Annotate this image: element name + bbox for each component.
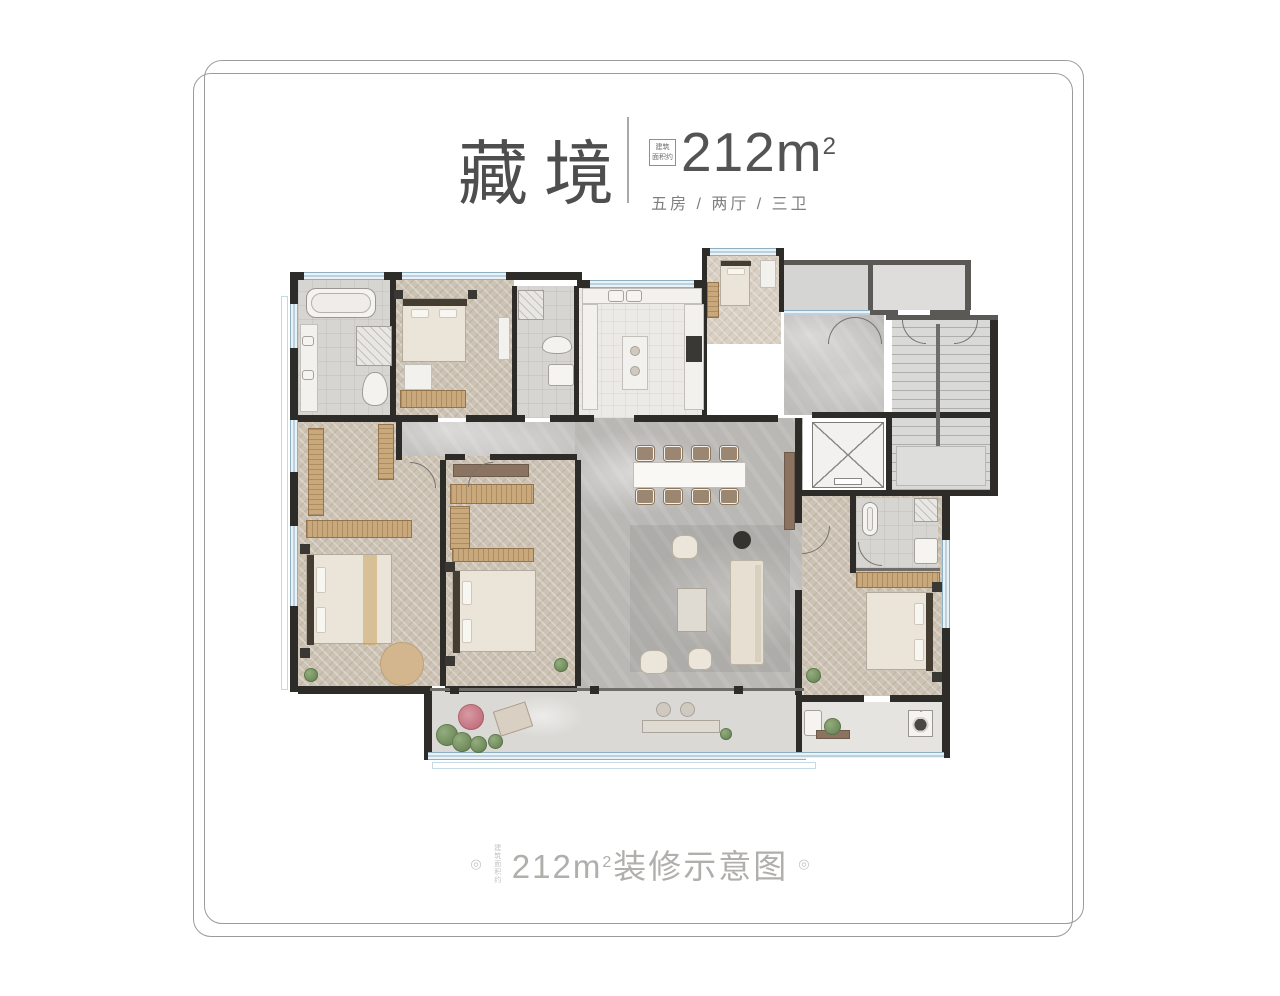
- wall: [298, 686, 430, 694]
- wall: [850, 495, 856, 573]
- plant: [304, 668, 318, 682]
- deco-circle-right: ◎: [798, 856, 809, 872]
- wardrobe: [450, 484, 534, 504]
- window: [290, 304, 298, 348]
- dining-table: [633, 462, 746, 488]
- cabinet: [498, 317, 510, 360]
- headboard: [721, 261, 751, 266]
- wall: [512, 286, 517, 416]
- hallway-floor: [402, 422, 575, 456]
- elevator-door: [834, 478, 862, 485]
- wall-post: [734, 686, 743, 694]
- wall: [886, 418, 892, 490]
- area-badge-line1: 建筑: [656, 143, 670, 152]
- console-table: [642, 720, 720, 733]
- wall: [440, 460, 446, 686]
- bathtub: [306, 288, 376, 318]
- wall: [990, 320, 998, 490]
- window: [590, 280, 694, 288]
- plant: [554, 658, 568, 672]
- cabinet: [760, 260, 776, 288]
- kitchen-sink: [608, 290, 624, 302]
- footer-area-superscript: 2: [602, 854, 613, 871]
- pillow: [316, 607, 326, 633]
- wall: [784, 260, 970, 265]
- wall: [942, 702, 950, 758]
- window: [710, 248, 776, 256]
- bed: [452, 570, 536, 652]
- nightstand: [445, 656, 455, 666]
- toilet: [542, 336, 572, 354]
- wall-post: [450, 686, 459, 694]
- stool: [656, 702, 671, 717]
- plant: [806, 668, 821, 683]
- dining-chair: [720, 446, 738, 461]
- wall: [779, 256, 784, 312]
- stair-divider: [936, 324, 940, 446]
- wall: [634, 415, 778, 422]
- stool: [630, 366, 640, 376]
- balcony-door-track: [430, 688, 804, 691]
- footer-caption: 212m2装修示意图: [512, 840, 788, 888]
- wardrobe: [450, 506, 470, 550]
- wall: [424, 686, 432, 760]
- wall: [890, 695, 950, 702]
- dining-chair: [664, 489, 682, 504]
- pillow: [914, 639, 924, 661]
- nightstand: [394, 290, 403, 299]
- wall: [396, 422, 402, 460]
- toilet: [362, 372, 388, 406]
- kitchen-sink: [626, 290, 642, 302]
- headboard: [307, 555, 314, 645]
- floor-plan: [290, 240, 1002, 788]
- footer-caption-suffix: 装修示意图: [613, 848, 788, 885]
- wardrobe: [452, 548, 534, 562]
- dining-chair: [720, 489, 738, 504]
- bed: [402, 298, 466, 362]
- dresser: [404, 364, 432, 390]
- wall: [795, 590, 802, 695]
- wardrobe: [308, 428, 324, 516]
- plant: [720, 728, 732, 740]
- nightstand: [445, 562, 455, 572]
- headboard: [453, 571, 460, 653]
- nightstand: [468, 290, 477, 299]
- wardrobe: [306, 520, 412, 538]
- layout-spec: 五房 / 两厅 / 三卫: [651, 190, 810, 214]
- kitchen-counter: [582, 288, 702, 304]
- window: [290, 526, 298, 606]
- stool: [630, 346, 640, 356]
- armchair: [672, 535, 698, 559]
- area-superscript: 2: [823, 133, 837, 160]
- wall: [795, 418, 802, 523]
- plant: [470, 736, 487, 753]
- pillow: [411, 309, 429, 318]
- bed: [720, 260, 750, 306]
- floor-lamp: [733, 531, 751, 549]
- nightstand: [300, 648, 310, 658]
- wall: [445, 454, 465, 460]
- bathroom-vanity: [914, 538, 938, 564]
- page: { "header": { "title": "藏境", "badge": { …: [0, 0, 1280, 996]
- wall: [298, 415, 438, 422]
- footer-vertical-note: 建筑面积约: [492, 844, 502, 884]
- wall: [466, 415, 525, 422]
- wall: [575, 460, 581, 686]
- wall: [574, 286, 579, 416]
- area-number: 212m: [681, 121, 823, 183]
- area-badge-line2: 面积约: [652, 153, 673, 162]
- lobby-floor: [868, 265, 965, 310]
- glass-outline-left: [281, 296, 288, 690]
- wardrobe: [378, 424, 394, 480]
- wall: [550, 415, 594, 422]
- stair-landing: [896, 446, 986, 486]
- nightstand: [300, 544, 310, 554]
- nightstand: [932, 672, 942, 682]
- window: [784, 310, 870, 315]
- plant: [452, 732, 472, 752]
- window: [304, 272, 384, 280]
- bed-throw: [363, 555, 377, 645]
- wall: [965, 260, 971, 310]
- wall: [796, 695, 802, 757]
- stove: [686, 336, 702, 362]
- pillow: [914, 603, 924, 625]
- kitchen-counter: [582, 304, 598, 410]
- headboard: [926, 593, 933, 671]
- pillow: [727, 268, 745, 275]
- armchair: [688, 648, 712, 670]
- wall: [795, 490, 998, 496]
- window: [428, 752, 806, 760]
- wall: [868, 310, 898, 315]
- dining-chair: [664, 446, 682, 461]
- coffee-table: [677, 588, 707, 632]
- bathroom-vanity: [548, 364, 574, 386]
- plant: [824, 718, 841, 735]
- wall: [930, 310, 970, 315]
- footer: ◎ 建筑面积约 212m2装修示意图 ◎: [0, 840, 1280, 888]
- toilet: [920, 710, 922, 712]
- shower: [914, 498, 938, 522]
- wall: [856, 568, 940, 571]
- page-title: 藏境: [458, 118, 630, 219]
- tv-cabinet: [784, 452, 795, 530]
- wall: [490, 454, 577, 460]
- window: [942, 540, 950, 628]
- window: [402, 272, 506, 280]
- shower: [356, 326, 392, 366]
- sofa-back: [755, 565, 761, 662]
- area-badge: 建筑 面积约: [649, 139, 676, 166]
- sofa: [730, 560, 764, 665]
- round-rug: [380, 642, 424, 686]
- deco-circle-left: ◎: [470, 856, 481, 872]
- wardrobe: [707, 282, 719, 318]
- area-value: 212m2: [681, 120, 837, 184]
- wall: [868, 265, 873, 310]
- footer-area-number: 212m: [512, 848, 603, 885]
- dining-chair: [692, 489, 710, 504]
- washing-machine: [908, 710, 933, 737]
- shower: [518, 290, 544, 320]
- pillow: [316, 567, 326, 593]
- wall: [812, 412, 990, 418]
- armchair: [640, 650, 668, 674]
- bed: [866, 592, 932, 670]
- window: [798, 752, 944, 758]
- pillow: [439, 309, 457, 318]
- kitchen-island: [622, 336, 648, 390]
- master-bed: [306, 554, 392, 644]
- wall-post: [590, 686, 599, 694]
- dining-chair: [636, 489, 654, 504]
- stool: [680, 702, 695, 717]
- wall: [802, 695, 864, 702]
- wardrobe: [400, 390, 466, 408]
- wardrobe: [856, 572, 940, 588]
- public-corridor-floor: [784, 265, 868, 310]
- header-divider: [627, 117, 629, 203]
- nightstand: [932, 582, 942, 592]
- sink: [302, 370, 314, 380]
- headboard: [403, 299, 467, 306]
- sink: [302, 336, 314, 346]
- flower-plant: [458, 704, 484, 730]
- bathtub: [862, 502, 878, 536]
- window: [290, 420, 298, 472]
- pillow: [462, 619, 472, 643]
- dining-chair: [692, 446, 710, 461]
- dining-chair: [636, 446, 654, 461]
- pillow: [462, 581, 472, 605]
